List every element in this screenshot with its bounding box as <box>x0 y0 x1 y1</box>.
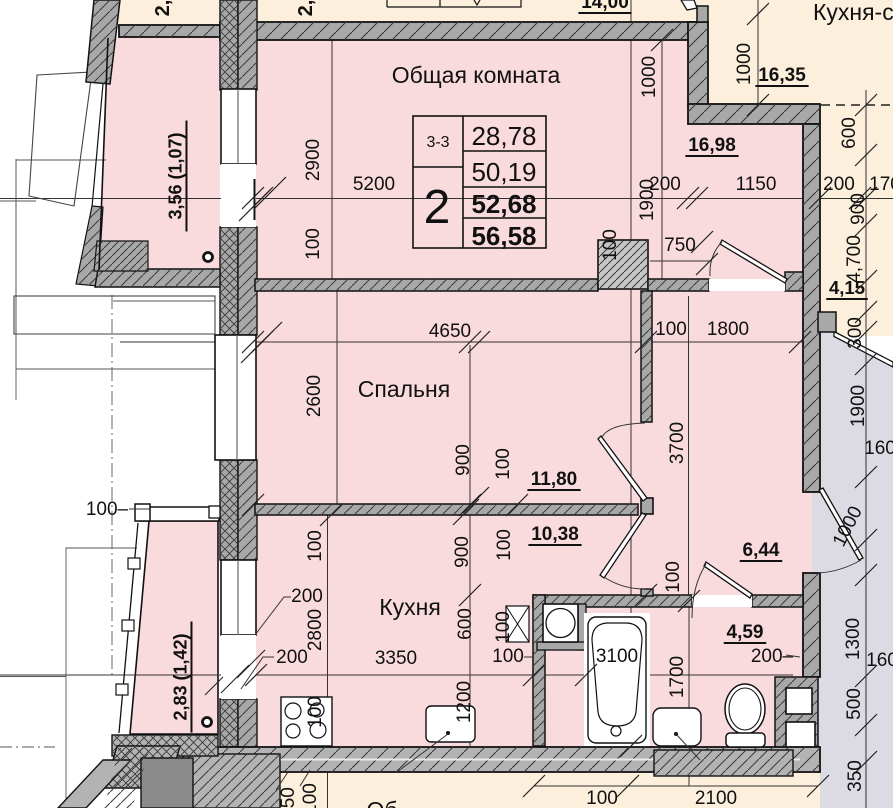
svg-text:100: 100 <box>300 783 321 808</box>
svg-text:100: 100 <box>493 448 514 480</box>
svg-text:100: 100 <box>305 530 326 562</box>
svg-text:16,98: 16,98 <box>688 135 736 156</box>
svg-text:52,68: 52,68 <box>471 189 536 219</box>
svg-text:100: 100 <box>655 319 687 340</box>
svg-text:2,: 2, <box>295 0 317 16</box>
svg-text:100–: 100– <box>86 499 129 520</box>
svg-text:Об: Об <box>366 797 397 808</box>
svg-text:200: 200 <box>276 647 308 668</box>
svg-text:160: 160 <box>866 650 893 671</box>
svg-text:2900: 2900 <box>303 139 324 181</box>
svg-text:Общая комната: Общая комната <box>392 62 561 88</box>
svg-text:3-3: 3-3 <box>426 134 449 151</box>
svg-text:3350: 3350 <box>375 648 417 669</box>
svg-text:100: 100 <box>492 646 524 667</box>
svg-text:2: 2 <box>424 181 451 234</box>
svg-text:900: 900 <box>453 444 474 476</box>
svg-text:100: 100 <box>493 611 514 643</box>
svg-text:1900: 1900 <box>848 385 869 427</box>
svg-text:2100: 2100 <box>695 788 737 808</box>
svg-text:100: 100 <box>586 788 618 808</box>
svg-text:2600: 2600 <box>304 375 325 417</box>
svg-text:16,35: 16,35 <box>758 65 806 86</box>
svg-text:4,700: 4,700 <box>844 235 865 283</box>
svg-text:100: 100 <box>663 561 684 593</box>
svg-text:56,58: 56,58 <box>471 221 536 251</box>
svg-text:3100: 3100 <box>596 646 638 667</box>
svg-text:3700: 3700 <box>667 422 688 464</box>
svg-text:100: 100 <box>303 228 324 260</box>
svg-text:300: 300 <box>845 317 866 349</box>
svg-text:4650: 4650 <box>429 321 471 342</box>
svg-text:Спальня: Спальня <box>358 376 450 402</box>
svg-text:6,44: 6,44 <box>743 540 780 561</box>
svg-text:900: 900 <box>452 536 473 568</box>
svg-text:3,56 (1,07): 3,56 (1,07) <box>165 132 185 219</box>
svg-text:160: 160 <box>864 438 893 459</box>
svg-text:150: 150 <box>278 787 299 808</box>
svg-text:350: 350 <box>845 760 866 792</box>
svg-text:10,38: 10,38 <box>531 524 579 545</box>
svg-text:2,: 2, <box>152 0 174 16</box>
svg-text:600: 600 <box>455 608 476 640</box>
svg-text:600: 600 <box>839 117 860 149</box>
svg-text:100: 100 <box>600 229 621 261</box>
svg-text:200–: 200– <box>751 646 794 667</box>
svg-text:200: 200 <box>823 174 855 195</box>
svg-text:1200: 1200 <box>454 681 475 723</box>
svg-text:11,80: 11,80 <box>531 469 578 490</box>
svg-text:5200: 5200 <box>353 174 395 195</box>
svg-text:750: 750 <box>664 235 696 256</box>
svg-text:1000: 1000 <box>734 43 755 85</box>
svg-text:1800: 1800 <box>707 319 749 340</box>
svg-text:900: 900 <box>848 193 869 225</box>
svg-text:50,19: 50,19 <box>471 157 536 187</box>
svg-text:Кухня: Кухня <box>379 594 441 620</box>
svg-text:100: 100 <box>305 696 326 728</box>
svg-text:4,59: 4,59 <box>727 622 764 643</box>
svg-text:28,78: 28,78 <box>471 121 536 151</box>
svg-text:170: 170 <box>869 174 893 195</box>
svg-text:14,00: 14,00 <box>581 0 629 13</box>
svg-text:500: 500 <box>844 688 865 720</box>
svg-text:1000: 1000 <box>639 56 660 98</box>
svg-text:1700: 1700 <box>667 656 688 698</box>
svg-text:1900: 1900 <box>637 179 658 221</box>
svg-text:1300: 1300 <box>843 618 864 660</box>
svg-text:100: 100 <box>494 529 515 561</box>
svg-text:200: 200 <box>291 586 323 607</box>
svg-text:Кухня-с: Кухня-с <box>813 0 893 25</box>
svg-text:2,83 (1,42): 2,83 (1,42) <box>170 633 190 720</box>
svg-text:1150: 1150 <box>736 174 777 195</box>
svg-text:2800: 2800 <box>305 609 326 651</box>
